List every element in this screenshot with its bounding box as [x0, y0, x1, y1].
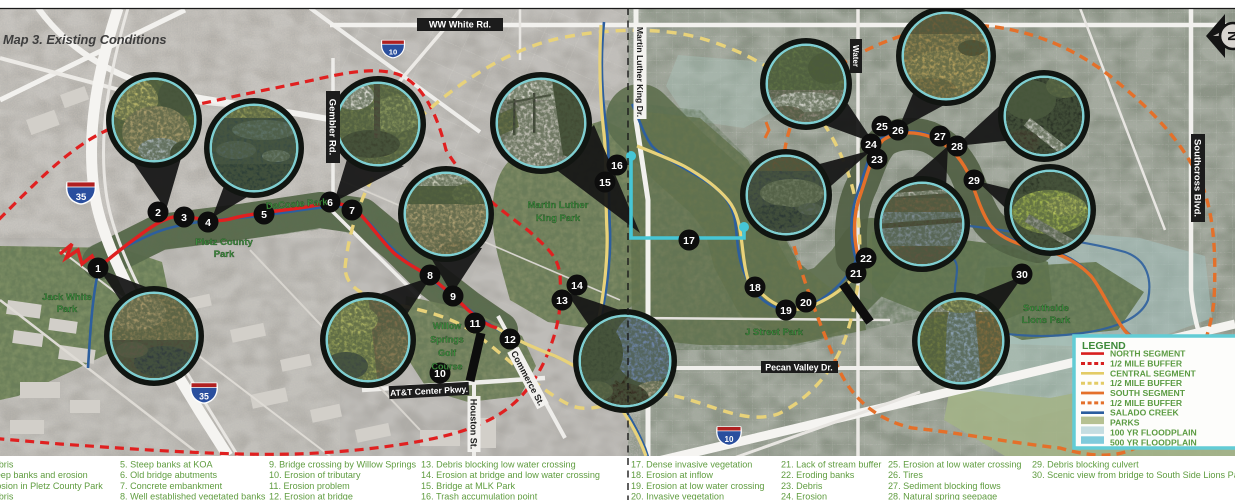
- svg-text:17: 17: [683, 235, 695, 247]
- svg-text:23: 23: [871, 154, 883, 166]
- svg-text:Houston St.: Houston St.: [469, 399, 479, 450]
- svg-text:PARKS: PARKS: [1110, 418, 1140, 428]
- svg-text:30. Scenic view from bridge to: 30. Scenic view from bridge to South Sid…: [1032, 470, 1235, 480]
- svg-text:30: 30: [1016, 269, 1028, 281]
- svg-text:6. Old bridge abutments: 6. Old bridge abutments: [120, 470, 218, 480]
- svg-text:Park: Park: [57, 304, 78, 315]
- svg-text:10: 10: [725, 435, 734, 444]
- svg-text:Southside: Southside: [1023, 303, 1069, 314]
- svg-text:CENTRAL SEGMENT: CENTRAL SEGMENT: [1110, 368, 1197, 378]
- svg-text:1/2 MILE BUFFER: 1/2 MILE BUFFER: [1110, 398, 1183, 408]
- svg-text:16: 16: [611, 160, 623, 172]
- svg-text:14: 14: [571, 280, 583, 292]
- svg-text:1/2 MILE BUFFER: 1/2 MILE BUFFER: [1110, 359, 1183, 369]
- svg-text:1. Debris: 1. Debris: [0, 459, 14, 469]
- svg-text:22. Eroding banks: 22. Eroding banks: [781, 470, 855, 480]
- svg-text:King Park: King Park: [536, 213, 581, 224]
- svg-text:Lions Park: Lions Park: [1022, 315, 1071, 326]
- svg-text:12. Erosion at bridge: 12. Erosion at bridge: [269, 492, 353, 500]
- svg-text:28. Natural spring seepage: 28. Natural spring seepage: [888, 492, 997, 500]
- svg-text:3. Erosion in Pletz County Par: 3. Erosion in Pletz County Park: [0, 481, 103, 491]
- svg-text:7. Concrete embankment: 7. Concrete embankment: [120, 481, 223, 491]
- svg-text:Gembler Rd.: Gembler Rd.: [327, 99, 338, 156]
- svg-text:25: 25: [876, 121, 888, 133]
- svg-text:Martin Luther King Dr.: Martin Luther King Dr.: [635, 27, 645, 117]
- svg-text:29. Debris blocking culvert: 29. Debris blocking culvert: [1032, 459, 1139, 469]
- svg-text:22: 22: [860, 253, 872, 265]
- svg-text:25. Erosion at low water cross: 25. Erosion at low water crossing: [888, 459, 1021, 469]
- svg-text:WW White Rd.: WW White Rd.: [429, 20, 491, 30]
- svg-text:21: 21: [850, 268, 862, 280]
- svg-text:Pecan Valley Dr.: Pecan Valley Dr.: [765, 363, 833, 373]
- svg-text:Martin Luther: Martin Luther: [528, 200, 589, 211]
- svg-text:17. Dense invasive vegetation: 17. Dense invasive vegetation: [631, 459, 752, 469]
- svg-text:12: 12: [504, 334, 516, 346]
- svg-text:4: 4: [205, 217, 211, 229]
- svg-text:35: 35: [199, 391, 209, 401]
- svg-text:Course: Course: [431, 362, 462, 372]
- svg-text:19: 19: [780, 305, 792, 317]
- svg-text:16. Trash accumulation point: 16. Trash accumulation point: [421, 492, 538, 500]
- svg-text:Map 3. Existing Conditions: Map 3. Existing Conditions: [3, 32, 167, 47]
- svg-text:Park: Park: [214, 249, 235, 260]
- svg-text:Pletz County: Pletz County: [195, 237, 253, 248]
- svg-text:29: 29: [968, 175, 980, 187]
- svg-text:23. Debris: 23. Debris: [781, 481, 823, 491]
- svg-text:19. Erosion at low water cross: 19. Erosion at low water crossing: [631, 481, 764, 491]
- svg-text:3: 3: [181, 212, 187, 224]
- svg-text:18. Erosion at inflow: 18. Erosion at inflow: [631, 470, 713, 480]
- svg-text:Jack White: Jack White: [42, 292, 92, 303]
- svg-text:100 YR FLOODPLAIN: 100 YR FLOODPLAIN: [1110, 427, 1197, 437]
- svg-text:1/2 MILE BUFFER: 1/2 MILE BUFFER: [1110, 378, 1183, 388]
- svg-text:15: 15: [599, 177, 611, 189]
- svg-text:J Street Park: J Street Park: [745, 327, 804, 338]
- svg-text:5. Steep banks at KOA: 5. Steep banks at KOA: [120, 459, 213, 469]
- svg-text:N: N: [1225, 31, 1235, 41]
- svg-text:13. Debris blocking low water: 13. Debris blocking low water crossing: [421, 459, 576, 469]
- svg-text:4. Debris: 4. Debris: [0, 492, 14, 500]
- svg-text:Southcross Blvd.: Southcross Blvd.: [1192, 139, 1203, 217]
- svg-text:26. Tires: 26. Tires: [888, 470, 923, 480]
- svg-text:NORTH SEGMENT: NORTH SEGMENT: [1110, 349, 1186, 359]
- svg-text:2: 2: [155, 207, 161, 219]
- svg-text:500 YR FLOODPLAIN: 500 YR FLOODPLAIN: [1110, 437, 1197, 447]
- svg-text:Springs: Springs: [430, 335, 464, 345]
- svg-text:1: 1: [95, 263, 101, 275]
- svg-text:13: 13: [556, 295, 568, 307]
- svg-text:6: 6: [327, 197, 333, 209]
- svg-text:7: 7: [349, 205, 355, 217]
- svg-text:15. Bridge at MLK Park: 15. Bridge at MLK Park: [421, 481, 515, 491]
- svg-text:14. Erosion at bridge and low: 14. Erosion at bridge and low water cros…: [421, 470, 600, 480]
- svg-text:27: 27: [934, 131, 946, 143]
- svg-text:27. Sediment blocking flows: 27. Sediment blocking flows: [888, 481, 1001, 491]
- svg-text:SOUTH SEGMENT: SOUTH SEGMENT: [1110, 388, 1186, 398]
- svg-text:26: 26: [892, 125, 904, 137]
- svg-text:Golf: Golf: [438, 348, 457, 358]
- svg-text:Water: Water: [851, 45, 860, 67]
- svg-text:Willow: Willow: [433, 321, 462, 331]
- svg-text:24: 24: [865, 139, 877, 151]
- svg-text:11: 11: [469, 318, 480, 330]
- svg-text:SALADO CREEK: SALADO CREEK: [1110, 408, 1180, 418]
- svg-text:24. Erosion: 24. Erosion: [781, 492, 827, 500]
- svg-text:2. Steep banks and erosion: 2. Steep banks and erosion: [0, 470, 88, 480]
- svg-text:21. Lack of stream buffer: 21. Lack of stream buffer: [781, 459, 881, 469]
- svg-text:9: 9: [450, 291, 456, 303]
- svg-text:10. Erosion of tributary: 10. Erosion of tributary: [269, 470, 361, 480]
- svg-text:10: 10: [389, 48, 397, 57]
- svg-text:8. Well established vegetated: 8. Well established vegetated banks: [120, 492, 266, 500]
- svg-text:18: 18: [749, 282, 761, 294]
- svg-text:9. Bridge crossing by Willow S: 9. Bridge crossing by Willow Springs: [269, 459, 417, 469]
- svg-text:11. Erosion problem: 11. Erosion problem: [269, 481, 350, 491]
- svg-text:35: 35: [76, 192, 87, 203]
- svg-text:8: 8: [427, 270, 433, 282]
- svg-text:20. Invasive vegetation: 20. Invasive vegetation: [631, 492, 724, 500]
- svg-text:28: 28: [951, 141, 963, 153]
- svg-text:20: 20: [800, 297, 812, 309]
